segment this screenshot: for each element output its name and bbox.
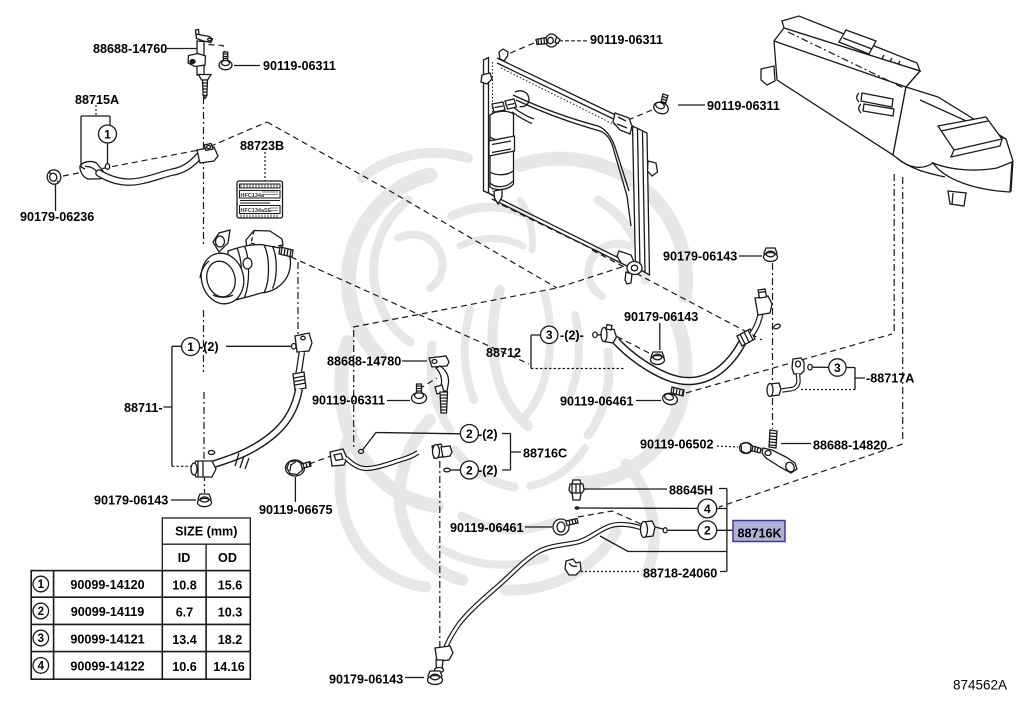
svg-text:90119-06461: 90119-06461 [450, 521, 524, 535]
svg-text:90099-14122: 90099-14122 [70, 660, 144, 674]
svg-text:88715A: 88715A [75, 93, 119, 107]
svg-text:6.7: 6.7 [176, 606, 194, 620]
svg-text:88688-14820: 88688-14820 [813, 439, 887, 453]
svg-text:15.6: 15.6 [218, 579, 243, 593]
svg-text:2: 2 [704, 524, 711, 538]
svg-text:88712: 88712 [486, 346, 521, 360]
svg-text:88723B: 88723B [240, 139, 284, 153]
svg-text:4: 4 [38, 661, 45, 673]
svg-text:3: 3 [546, 328, 553, 342]
svg-text:13.4: 13.4 [172, 633, 197, 647]
svg-text:874562A: 874562A [953, 678, 1007, 693]
svg-text:10.8: 10.8 [172, 579, 197, 593]
svg-text:90179-06143: 90179-06143 [329, 673, 403, 687]
svg-text:90119-06311: 90119-06311 [590, 33, 663, 47]
svg-text:90179-06143: 90179-06143 [624, 310, 698, 324]
svg-text:88716K: 88716K [738, 527, 782, 541]
svg-text:90099-14119: 90099-14119 [71, 605, 145, 619]
svg-text:88688-14780: 88688-14780 [327, 355, 401, 369]
svg-text:OD: OD [218, 551, 237, 565]
svg-text:90099-14120: 90099-14120 [70, 578, 144, 592]
svg-text:2: 2 [466, 427, 473, 441]
svg-text:1: 1 [187, 340, 194, 354]
svg-text:SIZE (mm): SIZE (mm) [175, 525, 237, 539]
svg-text:2: 2 [466, 463, 473, 477]
svg-text:-(2): -(2) [478, 464, 498, 478]
svg-text:3: 3 [834, 361, 841, 375]
svg-text:-88717A: -88717A [866, 372, 914, 386]
svg-text:4: 4 [704, 502, 711, 516]
svg-text:14.16: 14.16 [213, 660, 245, 674]
svg-text:90099-14121: 90099-14121 [70, 633, 144, 647]
svg-text:88645H: 88645H [669, 484, 713, 498]
svg-text:-(2): -(2) [199, 340, 219, 354]
svg-text:90179-06143: 90179-06143 [94, 494, 168, 508]
svg-text:90119-06311: 90119-06311 [312, 394, 385, 408]
svg-text:1: 1 [104, 127, 111, 141]
svg-text:90119-06461: 90119-06461 [560, 395, 634, 409]
svg-text:-(2)-: -(2)- [560, 329, 584, 343]
svg-text:18.2: 18.2 [218, 633, 243, 647]
svg-text:-(2): -(2) [478, 428, 498, 442]
svg-text:88711-: 88711- [124, 401, 163, 415]
svg-text:90179-06236: 90179-06236 [20, 210, 94, 224]
svg-text:90119-06502: 90119-06502 [640, 438, 714, 452]
svg-text:90179-06143: 90179-06143 [663, 250, 737, 264]
svg-text:HFC134a: HFC134a [241, 193, 265, 199]
svg-text:88716C: 88716C [523, 447, 567, 461]
svg-text:90119-06675: 90119-06675 [259, 503, 333, 517]
svg-text:3: 3 [38, 633, 44, 645]
svg-text:88688-14760: 88688-14760 [93, 42, 167, 56]
svg-text:88718-24060: 88718-24060 [643, 567, 717, 581]
svg-text:2: 2 [38, 606, 44, 618]
svg-text:10.6: 10.6 [172, 660, 197, 674]
svg-text:10.3: 10.3 [218, 606, 243, 620]
svg-text:HFC134aSE: HFC134aSE [241, 208, 272, 214]
svg-text:1: 1 [38, 579, 45, 591]
svg-text:90119-06311: 90119-06311 [707, 99, 780, 113]
svg-text:90119-06311: 90119-06311 [263, 59, 336, 73]
svg-text:ID: ID [178, 551, 191, 565]
